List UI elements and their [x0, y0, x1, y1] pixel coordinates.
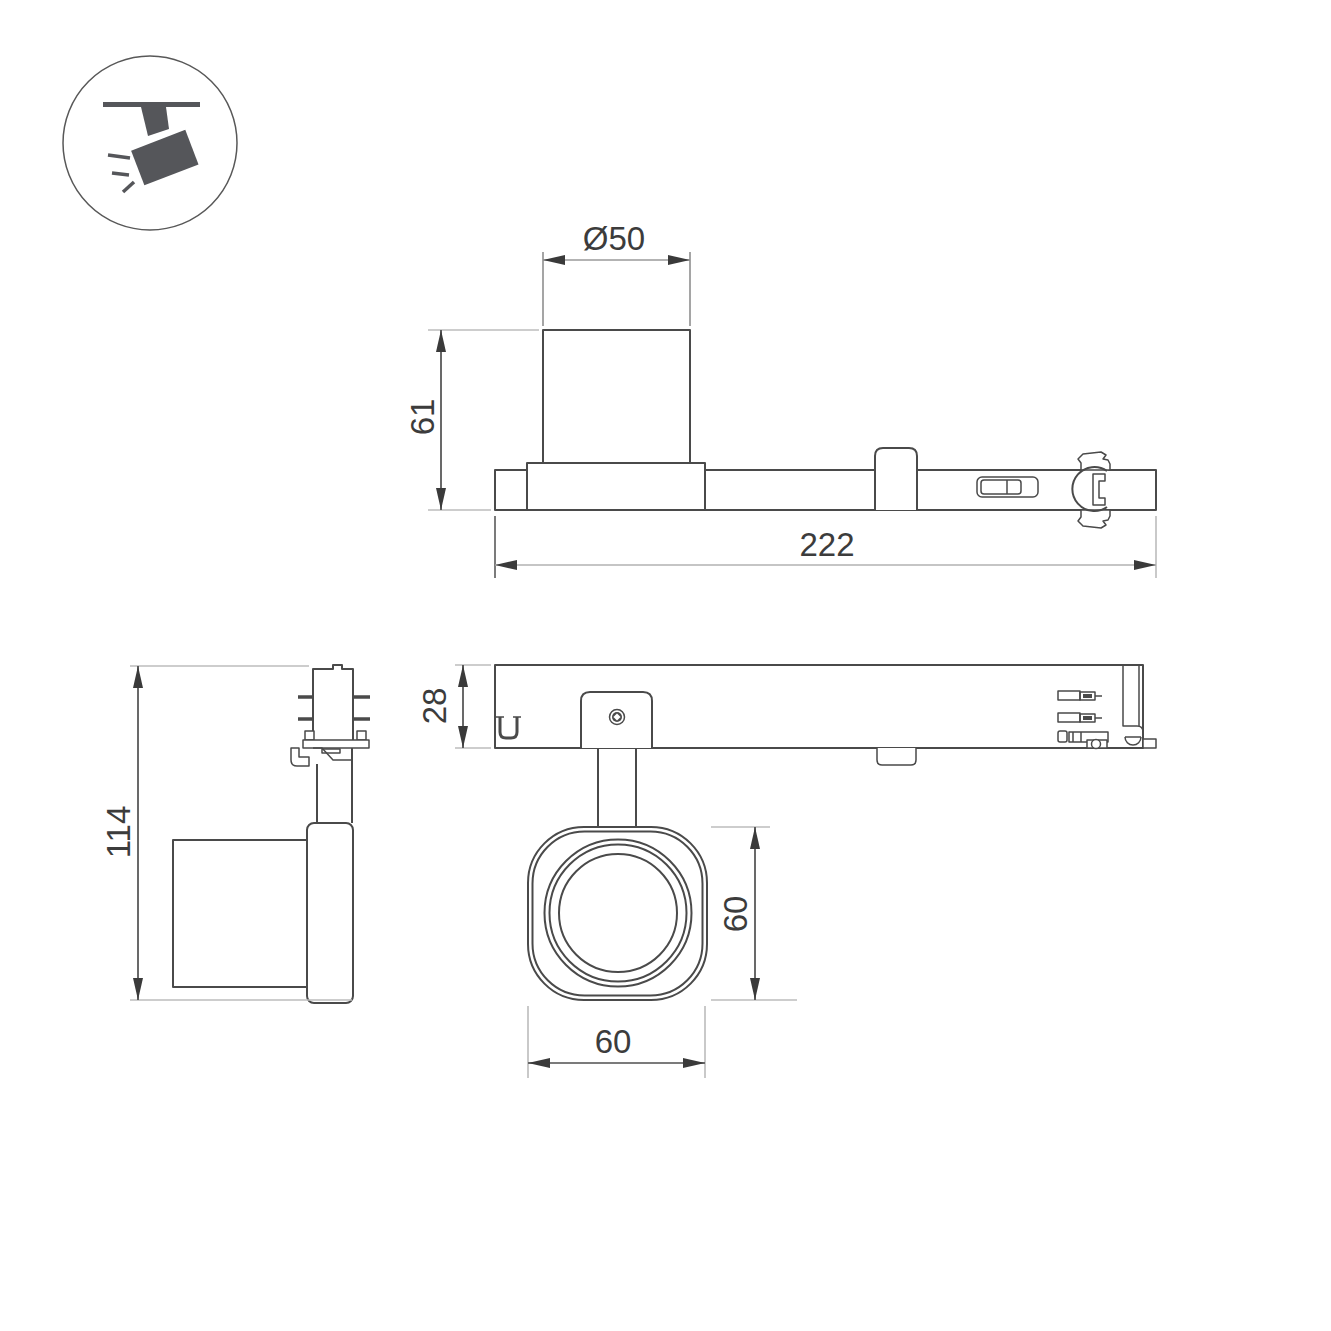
end-tab	[1143, 739, 1156, 748]
dim-diameter-50: Ø50	[543, 220, 690, 326]
lamp-head-body	[307, 823, 353, 1003]
dim-label-head-height: 60	[717, 896, 754, 933]
track-adapter-post	[313, 665, 353, 745]
dim-label-length: 222	[799, 526, 854, 563]
dim-label-height-61: 61	[404, 399, 441, 436]
dim-head-height-60: 60	[711, 827, 797, 1000]
dimension-drawing-svg: Ø50 61 222	[0, 0, 1331, 1331]
dim-head-width-60: 60	[528, 1006, 705, 1078]
dim-label-depth: 28	[416, 688, 453, 725]
flange-ear	[305, 731, 314, 740]
adapter-flange-plate	[303, 740, 369, 748]
end-screw	[1092, 740, 1101, 749]
lamp-barrel-outline	[173, 840, 307, 987]
yoke-step	[313, 748, 352, 760]
contact-terminal-fill	[1083, 716, 1092, 720]
icon-ceiling-track	[103, 102, 200, 107]
dim-depth-28: 28	[416, 665, 491, 748]
dim-length-222: 222	[495, 516, 1156, 578]
mount-hook	[291, 748, 309, 766]
cylinder-body-outline	[543, 330, 690, 463]
lamp-face-outer	[528, 827, 707, 1000]
drawing-canvas: Ø50 61 222	[0, 0, 1331, 1331]
dim-label-head-width: 60	[595, 1023, 632, 1060]
icon-light-ray	[112, 173, 129, 175]
track-end-cap	[495, 470, 527, 510]
rail-bottom-clip	[877, 748, 916, 765]
contact-terminal-fill	[1083, 694, 1092, 698]
flange-ear	[357, 731, 366, 740]
icon-circle-border	[63, 56, 237, 230]
top-side-view: Ø50 61 222	[404, 220, 1156, 578]
dim-label-diameter: Ø50	[583, 220, 645, 257]
left-side-view: 114	[100, 665, 370, 1003]
latch-lower-wing	[1078, 510, 1110, 528]
base-block-outline	[527, 463, 705, 510]
rotary-latch	[1072, 452, 1118, 528]
track-spotlight-icon	[63, 56, 237, 230]
bottom-view: 28 60 60	[416, 665, 1156, 1078]
rail-mount-block	[875, 448, 917, 510]
dim-label-height-114: 114	[100, 806, 137, 859]
